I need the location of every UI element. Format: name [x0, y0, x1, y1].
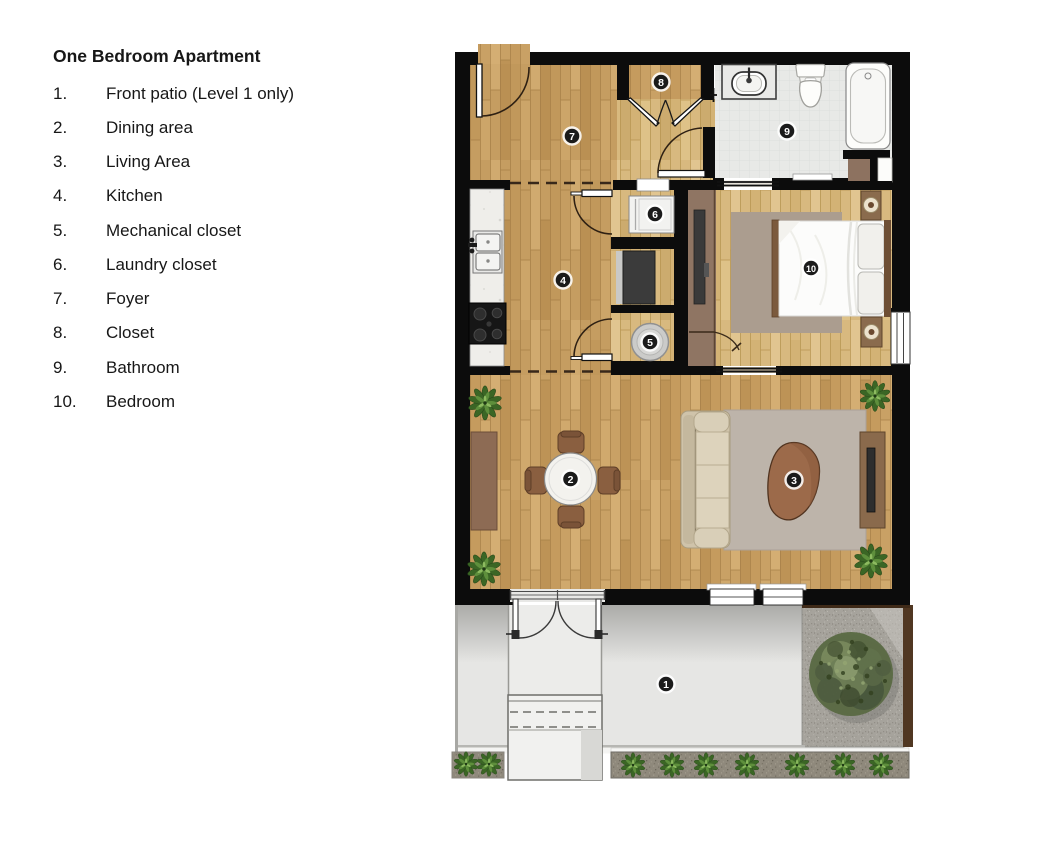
svg-text:10: 10 — [806, 264, 816, 274]
svg-text:1: 1 — [663, 679, 669, 691]
svg-text:3: 3 — [791, 475, 797, 487]
svg-text:7: 7 — [569, 131, 575, 143]
svg-text:6: 6 — [652, 209, 658, 221]
svg-text:9: 9 — [784, 126, 790, 138]
svg-text:4: 4 — [560, 275, 566, 287]
svg-text:8: 8 — [658, 77, 664, 89]
svg-text:2: 2 — [568, 474, 574, 486]
svg-text:5: 5 — [647, 337, 653, 349]
